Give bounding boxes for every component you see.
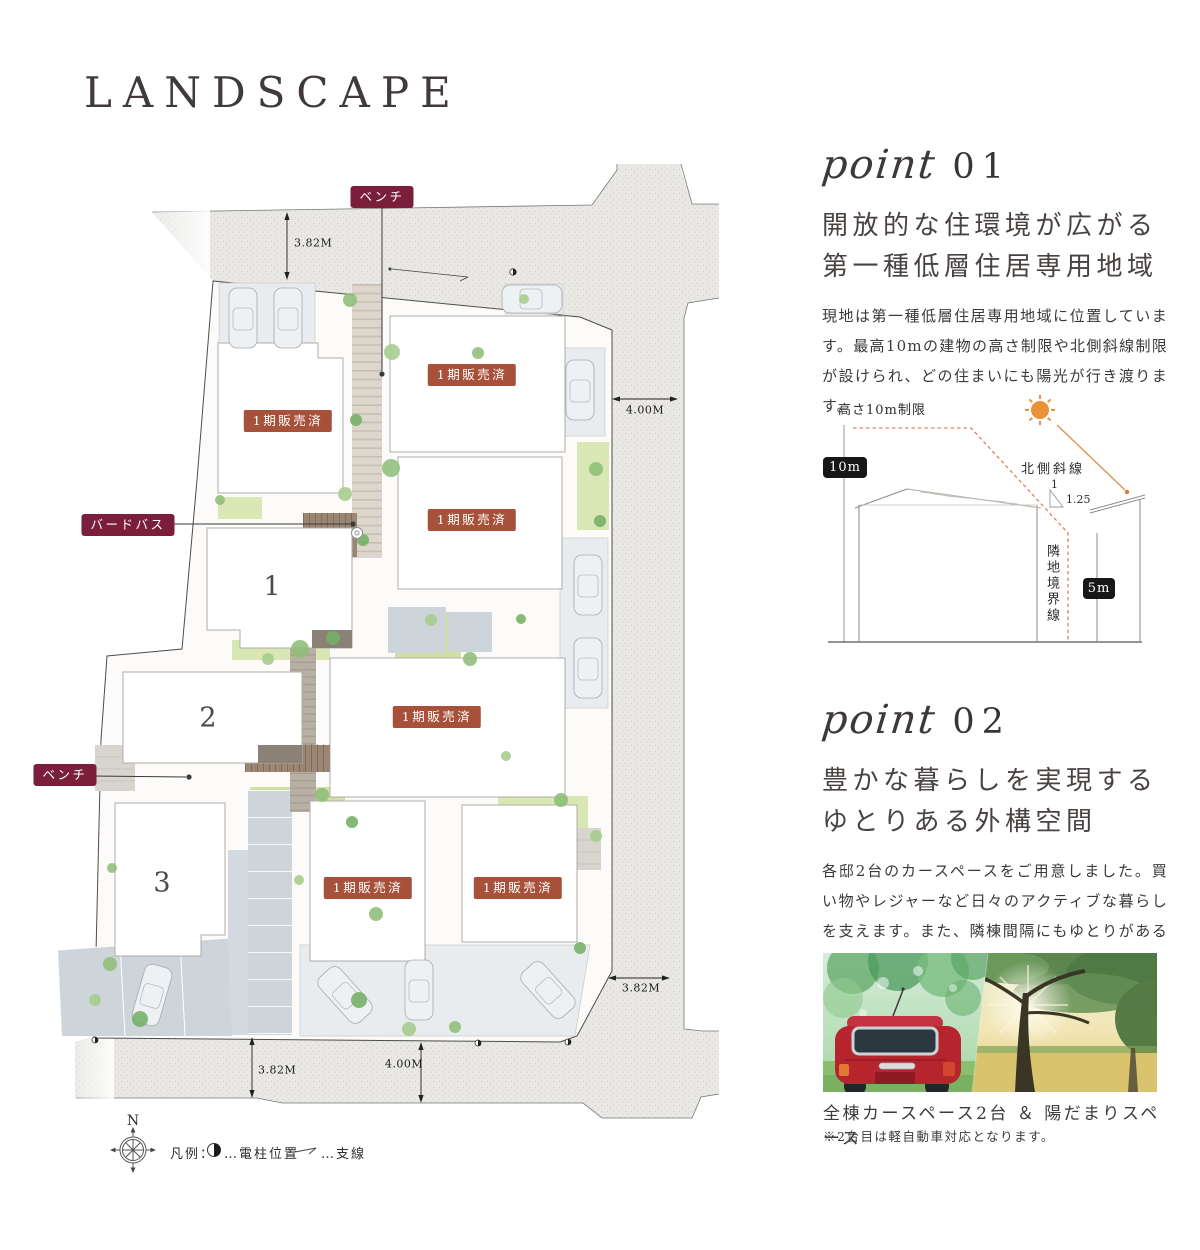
legend-title: 凡例： [170,1143,215,1162]
sold-label-6: 1期販売済 [474,877,562,899]
point-02-header: point 02 [822,697,1168,743]
lot-number-2: 2 [199,703,216,734]
height-restriction-diagram: 高さ10m制限 10m 北側斜線 1 1.25 隣地境界線 5m [820,392,1170,654]
legend-pole-label: …電柱位置 [224,1143,299,1162]
lot-number-3: 3 [153,868,170,899]
bench-label-top: ベンチ [350,186,413,208]
dim-bottom-left: 3.82M [258,1064,296,1077]
point-kicker: point [820,697,939,743]
birdbath-label: バードバス [81,514,174,536]
site-plan: ベンチ1期販売済1期販売済1期販売済バードバス1期販売済ベンチ1期販売済1期販売… [0,0,760,1250]
ratio-value: 1.25 [1066,493,1091,506]
bench-label-left: ベンチ [33,764,96,786]
point-02-heading: 豊かな暮らしを実現する ゆとりある外構空間 [822,761,1168,843]
dim-right-lower: 3.82M [622,982,660,995]
height-limit-label: 高さ10m制限 [838,399,926,418]
sold-label-4: 1期販売済 [393,706,481,728]
point-kicker: point [820,142,939,188]
point-number: 01 [952,147,1011,187]
diagram-graphic [820,392,1170,654]
sold-label-5: 1期販売済 [324,877,412,899]
north-slope-label: 北側斜線 [1021,458,1085,477]
dim-bottom-right: 4.00M [385,1058,423,1071]
ratio-top: 1 [1051,478,1058,491]
ten-m-badge: 10m [823,457,867,478]
house-outline [855,489,1041,642]
point-number: 02 [952,702,1011,742]
landscape-page: LANDSCAPE [0,0,1200,1250]
slope-ratio-triangle [1050,490,1063,507]
sold-label-1: 1期販売済 [244,410,332,432]
boundary-label: 隣地境界線 [1042,544,1061,624]
point-02-section: point 02 豊かな暮らしを実現する ゆとりある外構空間 各邸2台のカースペ… [822,697,1168,976]
legend-wire-label: …支線 [321,1143,366,1162]
photo-note: ※2台目は軽自動車対応となります。 [823,1126,1163,1145]
point-01-header: point 01 [822,142,1168,188]
compass-icon [110,1127,156,1173]
carspace-photo [823,953,1157,1092]
dim-right-upper: 4.00M [626,404,664,417]
compass-north-label: N [127,1113,139,1129]
sun-icon [1025,395,1129,494]
lot-number-1: 1 [263,572,280,603]
sold-label-3: 1期販売済 [428,509,516,531]
dim-top-left: 3.82M [294,237,332,250]
five-m-badge: 5m [1083,578,1115,599]
neighbor-house-outline [1090,495,1145,642]
sold-label-2: 1期販売済 [428,364,516,386]
point-01-section: point 01 開放的な住環境が広がる 第一種低層住居専用地域 現地は第一種低… [822,142,1168,421]
point-01-heading: 開放的な住環境が広がる 第一種低層住居専用地域 [822,206,1168,288]
